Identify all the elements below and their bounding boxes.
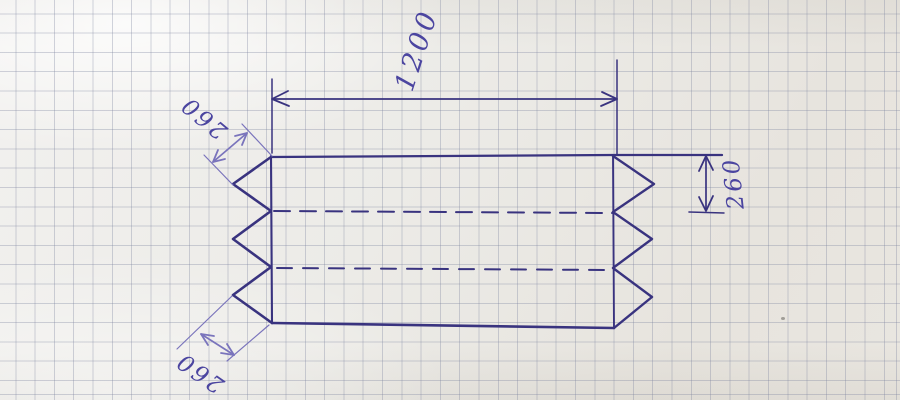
dimension-1200 [272,60,617,154]
dim-260-right-bottom-extension-line [689,212,724,213]
dim-260-bl-lower-arrowhead-icon [221,344,234,355]
dim-260-bl-line [201,334,234,355]
photographed-sketch: 1200 260 260 260 [0,0,900,400]
fold-line-upper-dashed [274,211,612,213]
dim-260-tl-extension-line-1 [242,124,272,156]
fold-line-lower-dashed [277,268,612,270]
dim-260-bl-upper-arrowhead-icon [201,334,214,345]
strip-outline [233,155,722,328]
left-zigzag-edge [233,157,272,323]
strip-top-edge [271,155,722,157]
right-zigzag-edge [613,156,654,328]
paper-speck [781,317,785,320]
strip-bottom-edge [272,323,614,328]
technical-drawing-svg [0,0,900,400]
dim-260-tl-extension-line-2 [204,155,233,185]
dimension-label-260-right: 260 [718,155,749,210]
strip-right-edge [613,155,614,328]
strip-left-edge [271,156,272,323]
